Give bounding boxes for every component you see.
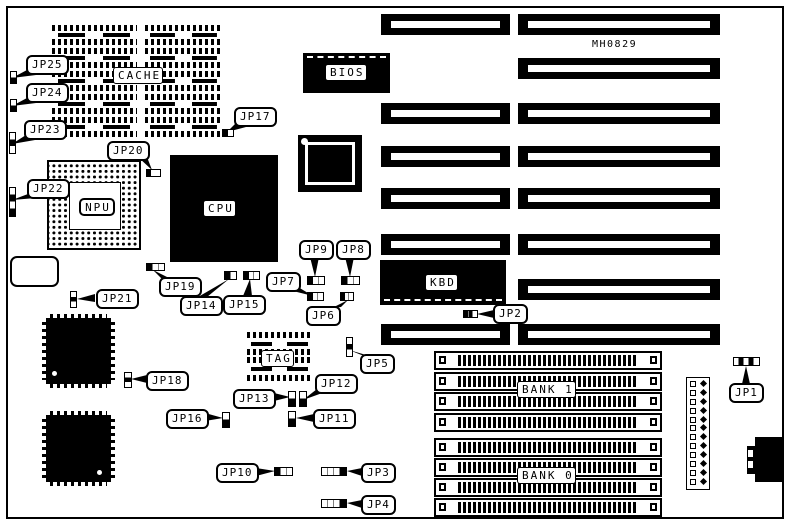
callout-jp24: JP24 bbox=[26, 83, 69, 103]
tail-jp4 bbox=[347, 500, 362, 508]
callout-jp16: JP16 bbox=[166, 409, 209, 429]
callout-jp14: JP14 bbox=[180, 296, 223, 316]
callout-jp9: JP9 bbox=[299, 240, 334, 260]
jumper-jp11 bbox=[288, 411, 296, 427]
jumper-jp7 bbox=[307, 292, 324, 301]
jumper-jp16 bbox=[222, 412, 230, 428]
tail-jp15 bbox=[243, 279, 252, 296]
jumper-jp2 bbox=[463, 310, 478, 318]
tail-jp2 bbox=[477, 310, 494, 318]
tail-jp1 bbox=[742, 366, 750, 384]
jumper-jp14 bbox=[224, 271, 237, 280]
callout-jp11: JP11 bbox=[313, 409, 356, 429]
callout-jp8: JP8 bbox=[336, 240, 371, 260]
tail-jp3 bbox=[347, 468, 362, 476]
jumper-jp21 bbox=[70, 291, 77, 308]
callout-jp19: JP19 bbox=[159, 277, 202, 297]
callout-jp12: JP12 bbox=[315, 374, 358, 394]
tail-jp18 bbox=[131, 375, 147, 383]
jumper-jp22 bbox=[9, 187, 16, 217]
jumper-jp18 bbox=[124, 372, 132, 388]
tail-jp21 bbox=[77, 294, 95, 302]
jumper-jp5 bbox=[346, 337, 353, 357]
jumper-jp4 bbox=[321, 499, 347, 508]
jumper-jp13 bbox=[288, 391, 296, 407]
callout-jp1: JP1 bbox=[729, 383, 764, 403]
jumper-jp23 bbox=[9, 132, 16, 154]
callout-jp20: JP20 bbox=[107, 141, 150, 161]
callout-jp25: JP25 bbox=[26, 55, 69, 75]
callout-jp18: JP18 bbox=[146, 371, 189, 391]
jumper-jp6 bbox=[340, 292, 354, 301]
callout-jp2: JP2 bbox=[493, 304, 528, 324]
jumper-jp9 bbox=[307, 276, 325, 285]
callout-jp17: JP17 bbox=[234, 107, 277, 127]
callout-jp10: JP10 bbox=[216, 463, 259, 483]
tail-jp11 bbox=[296, 414, 314, 422]
callout-tails bbox=[0, 0, 791, 527]
callout-jp15: JP15 bbox=[223, 295, 266, 315]
callout-jp23: JP23 bbox=[24, 120, 67, 140]
callout-jp21: JP21 bbox=[96, 289, 139, 309]
callout-jp4: JP4 bbox=[361, 495, 396, 515]
callout-jp7: JP7 bbox=[266, 272, 301, 292]
jumper-jp10 bbox=[274, 467, 293, 476]
jumper-jp8 bbox=[341, 276, 360, 285]
tail-jp14 bbox=[198, 279, 229, 297]
jumper-jp3 bbox=[321, 467, 347, 476]
callout-jp13: JP13 bbox=[233, 389, 276, 409]
callout-jp3: JP3 bbox=[361, 463, 396, 483]
motherboard-diagram: CACHE BIOS NPU CPU KBD TAG bbox=[0, 0, 791, 527]
jumper-jp25 bbox=[10, 71, 17, 84]
callout-jp6: JP6 bbox=[306, 306, 341, 326]
jumper-jp24 bbox=[10, 99, 17, 112]
tail-jp10 bbox=[256, 468, 275, 476]
jumper-jp17 bbox=[222, 129, 234, 137]
callout-jp22: JP22 bbox=[27, 179, 70, 199]
jumper-jp19 bbox=[146, 263, 165, 271]
callout-jp5: JP5 bbox=[360, 354, 395, 374]
jumper-jp1 bbox=[733, 357, 760, 366]
jumper-jp15 bbox=[243, 271, 260, 280]
jumper-jp20 bbox=[146, 169, 161, 177]
jumper-jp12 bbox=[299, 391, 307, 407]
